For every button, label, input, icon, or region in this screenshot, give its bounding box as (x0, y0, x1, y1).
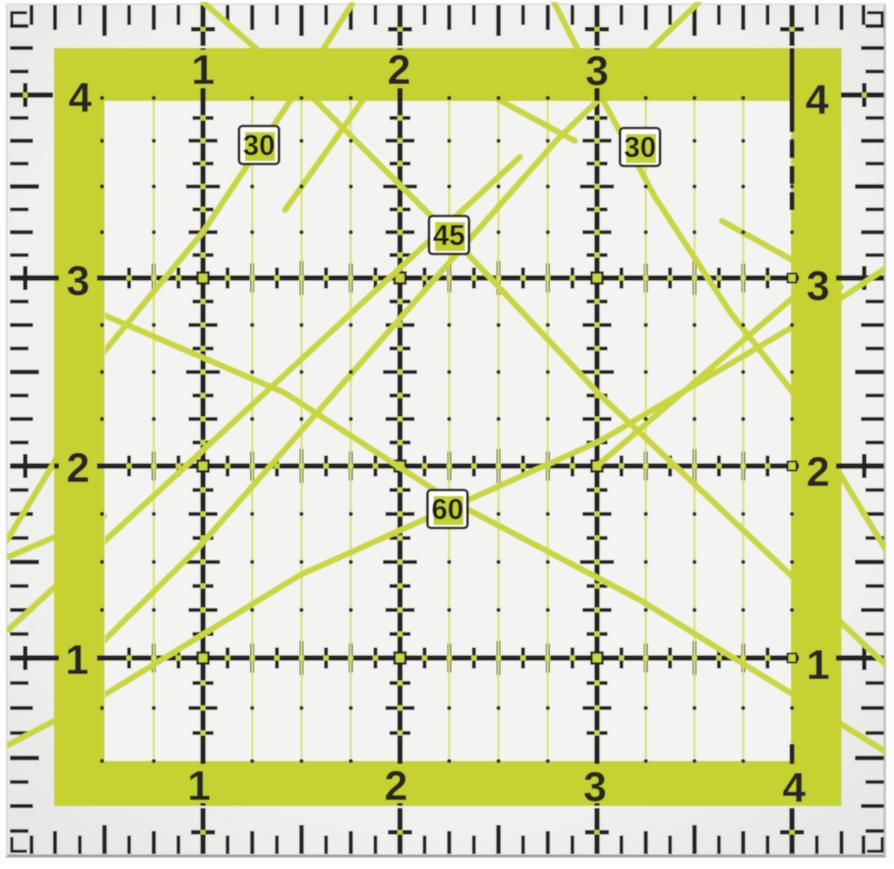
svg-text:1: 1 (65, 636, 88, 683)
svg-text:3: 3 (585, 47, 608, 94)
svg-text:30: 30 (624, 132, 656, 164)
svg-text:1: 1 (187, 762, 210, 809)
svg-text:45: 45 (433, 220, 465, 252)
svg-text:2: 2 (387, 46, 410, 93)
svg-text:4: 4 (68, 74, 92, 121)
svg-text:3: 3 (806, 262, 829, 309)
svg-text:3: 3 (583, 763, 606, 810)
svg-text:1: 1 (806, 641, 829, 688)
svg-text:2: 2 (806, 448, 829, 495)
svg-text:4: 4 (782, 764, 806, 811)
svg-text:3: 3 (66, 257, 89, 304)
svg-text:2: 2 (66, 444, 89, 491)
svg-text:1: 1 (191, 46, 214, 93)
svg-text:60: 60 (431, 494, 463, 526)
svg-text:4: 4 (805, 76, 829, 123)
svg-text:30: 30 (243, 130, 275, 162)
svg-text:2: 2 (384, 762, 407, 809)
